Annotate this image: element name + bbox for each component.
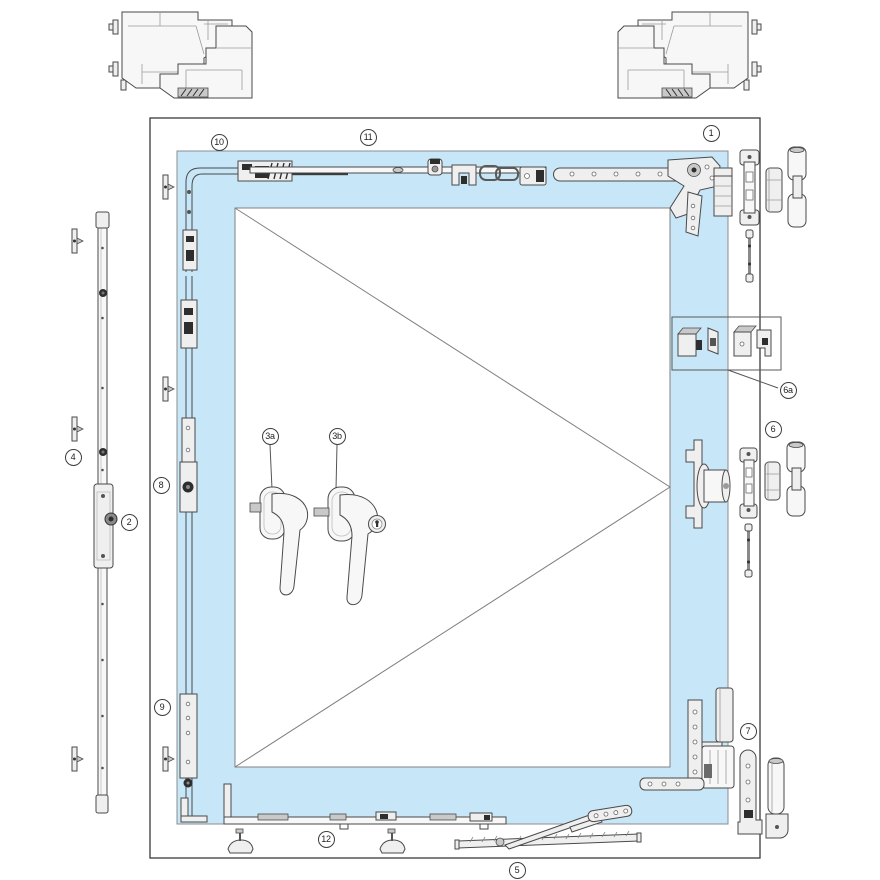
part-label-5: 5 (509, 862, 526, 879)
part-label-9: 9 (154, 699, 171, 716)
diagram-canvas (0, 0, 880, 880)
part-label-3a: 3a (262, 428, 279, 445)
part-label-11: 11 (360, 129, 377, 146)
part-label-12: 12 (318, 831, 335, 848)
handle-spindle (314, 508, 329, 516)
part-label-6: 6 (765, 421, 782, 438)
hinge-cover-large-top (788, 147, 806, 227)
profile-cross-section-right (618, 12, 761, 98)
part-label-2: 2 (121, 514, 138, 531)
part-label-1: 1 (703, 125, 720, 142)
profile-cross-section-left (109, 12, 252, 98)
handle-spindle (250, 503, 261, 512)
hinge-cover-bottom (766, 758, 788, 838)
part-label-8: 8 (153, 477, 170, 494)
espagnolette-gear-bar (94, 212, 117, 813)
part-label-4: 4 (65, 449, 82, 466)
window-hardware-diagram: 1 2 3a 3b 4 5 6 6a 7 8 9 10 11 12 (0, 0, 880, 880)
hinge-cover-small-middle (765, 462, 780, 500)
window-frame (150, 118, 760, 858)
part-label-6a: 6a (780, 382, 797, 399)
hinge-cover-large-middle (787, 442, 805, 516)
glass-pane (235, 208, 670, 767)
frame-striker-clips-outer (72, 229, 83, 771)
part-label-10: 10 (211, 134, 228, 151)
hinge-cover-small-top (766, 168, 782, 212)
part-label-7: 7 (740, 723, 757, 740)
part-label-3b: 3b (329, 428, 346, 445)
